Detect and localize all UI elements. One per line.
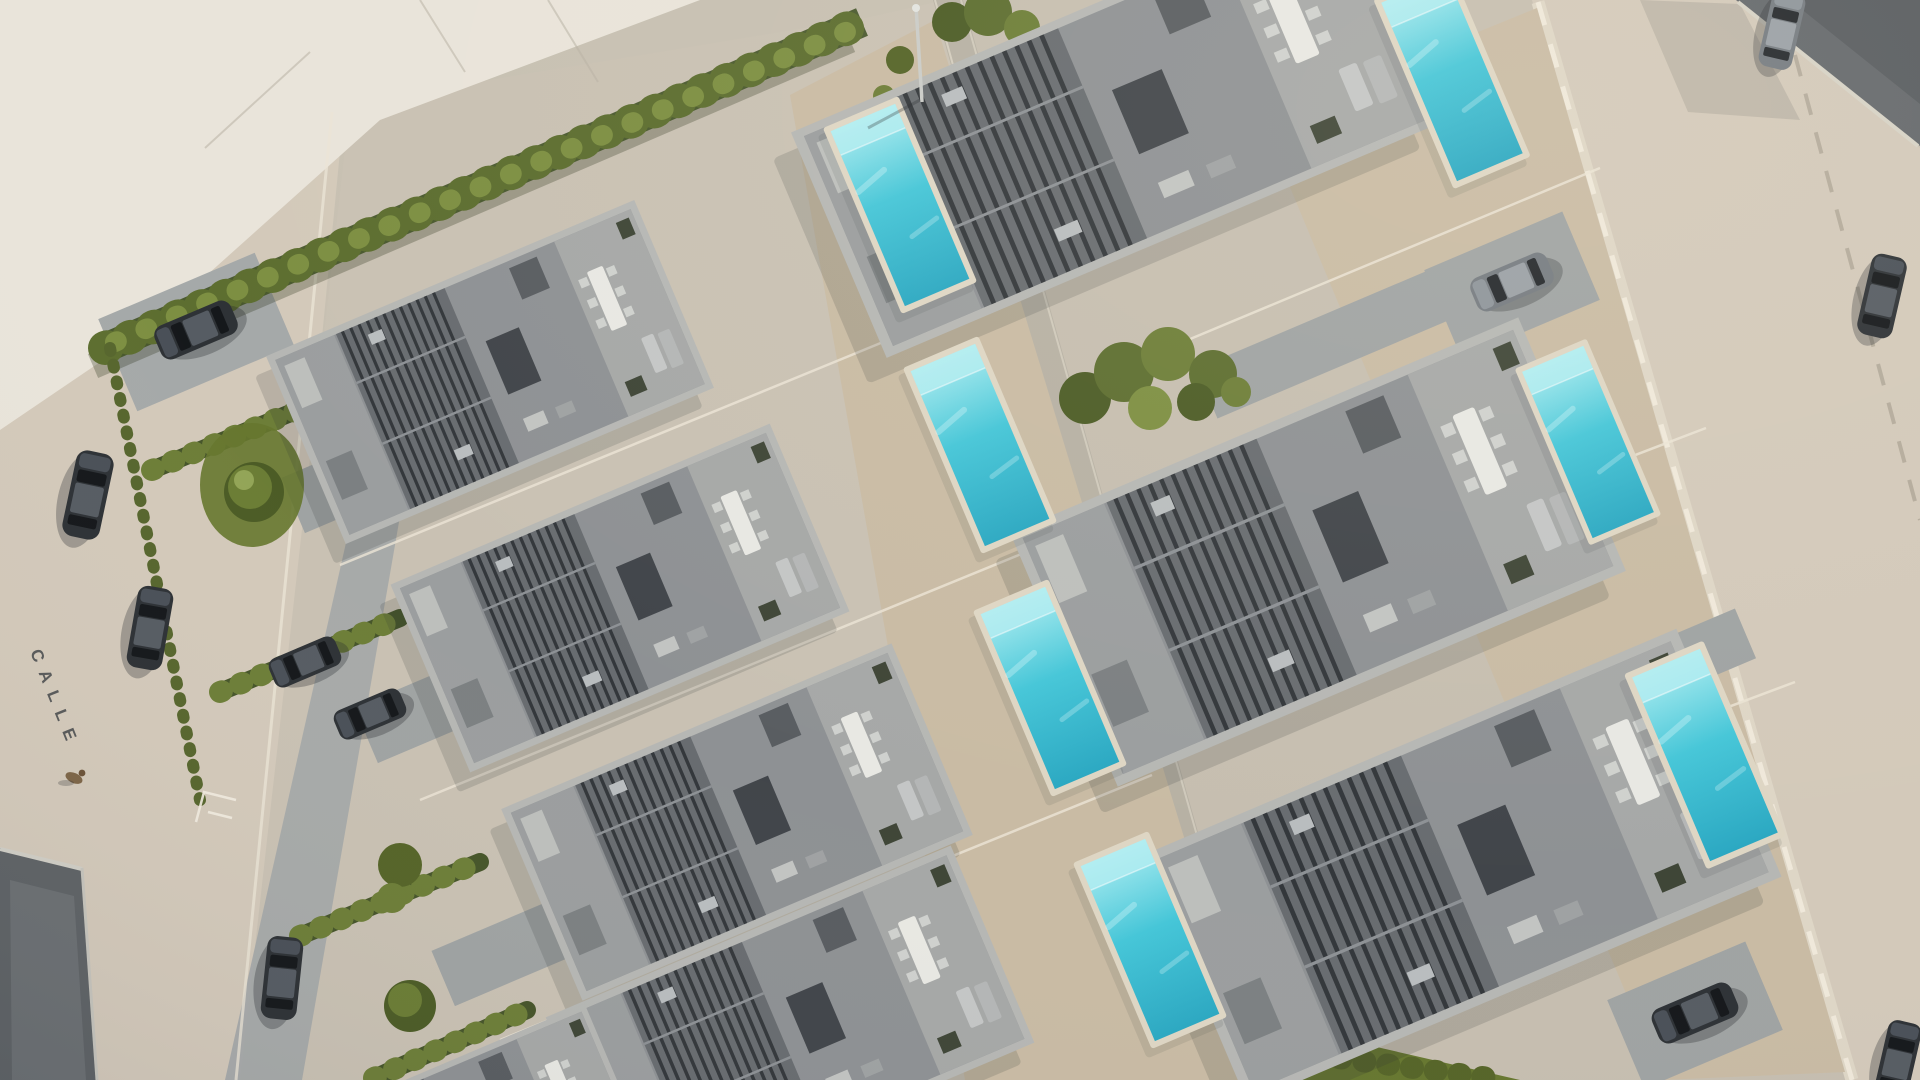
aerial-render-canvas: CALLE xyxy=(0,0,1920,1080)
aerial-render: CALLE xyxy=(0,0,1920,1080)
light-overlay xyxy=(0,0,1920,1080)
